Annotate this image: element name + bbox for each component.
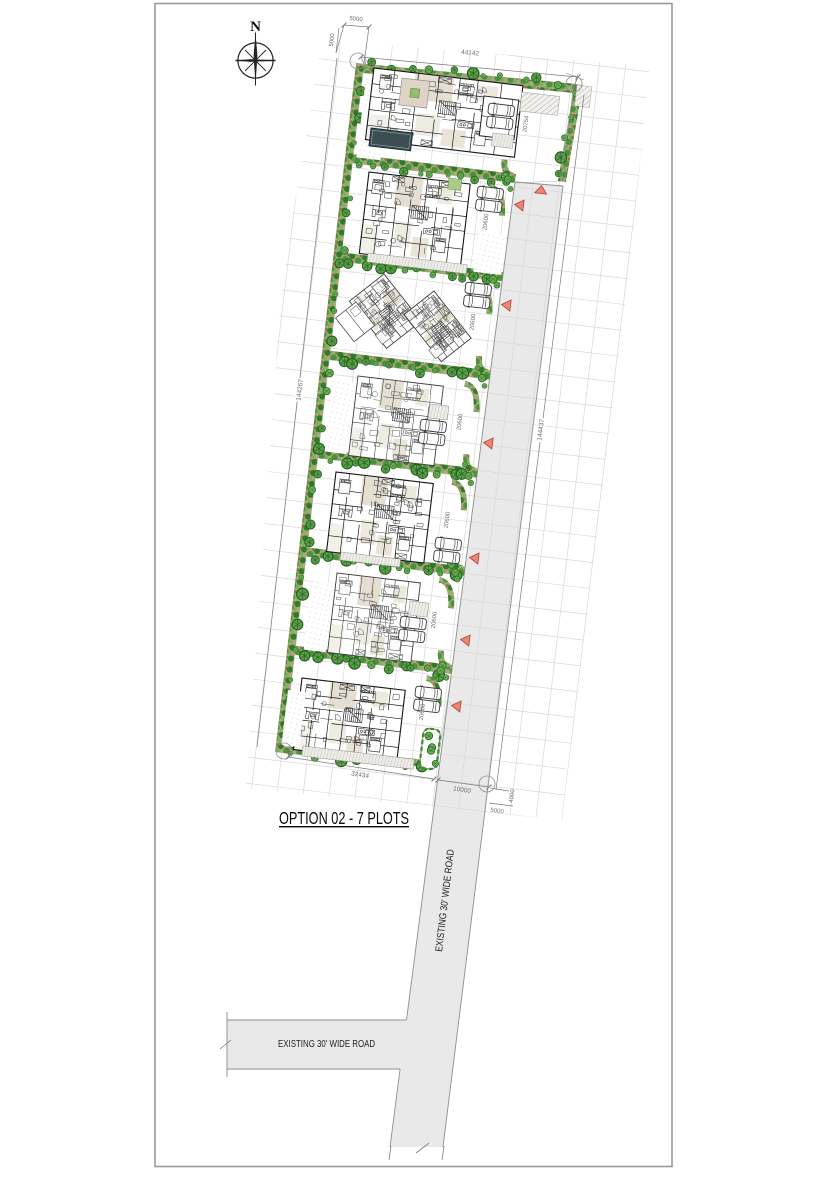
svg-text:OPTION 02 - 7 PLOTS: OPTION 02 - 7 PLOTS <box>279 809 409 829</box>
svg-text:N: N <box>250 19 261 35</box>
svg-text:EXISTING 30' WIDE ROAD: EXISTING 30' WIDE ROAD <box>278 1038 376 1049</box>
svg-text:5000: 5000 <box>349 16 363 23</box>
